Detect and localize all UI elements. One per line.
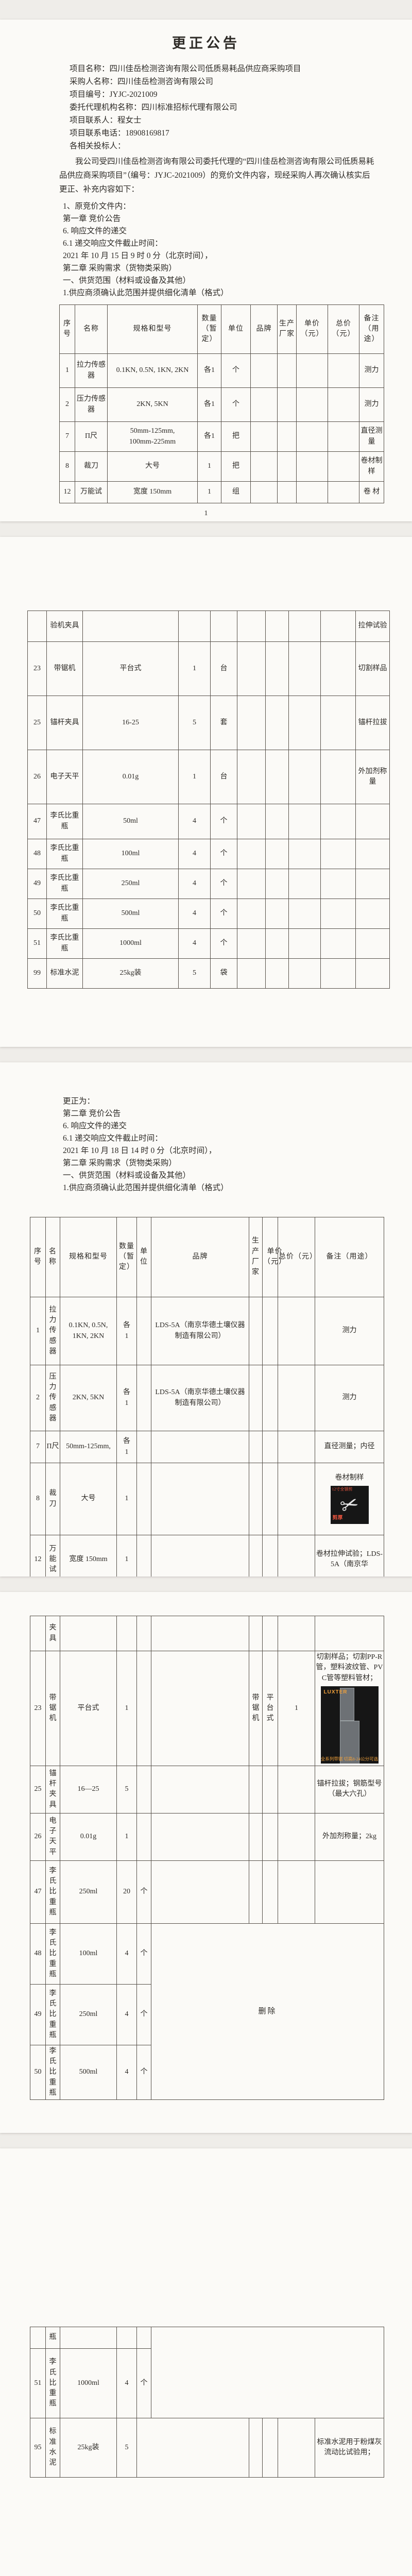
table-cell: 个: [137, 1860, 151, 1923]
table-cell: [321, 804, 356, 839]
table-cell: 12: [30, 1535, 46, 1577]
original-supply-table: 序号名称规格和型号数量（暂定）单位品牌生产厂家单价（元）总价（元）备注（用途）1…: [59, 304, 412, 503]
table-cell: 裁刀: [75, 452, 108, 482]
table-cell: 51: [28, 929, 47, 959]
table-cell: [328, 388, 359, 422]
table-cell: [151, 1535, 249, 1577]
table-cell: 电子天平: [46, 1813, 60, 1860]
table-cell: [278, 354, 297, 388]
table-cell: [137, 1616, 151, 1651]
table-cell: [289, 929, 321, 959]
table-cell: [289, 804, 321, 839]
table-cell: 锚杆夹具: [46, 1766, 60, 1813]
table-cell: Π尺: [75, 422, 108, 452]
table-cell: 4: [179, 869, 211, 899]
table-cell: 4: [179, 804, 211, 839]
table-cell: [321, 959, 356, 989]
table-cell: 台: [211, 642, 237, 696]
project-info-block: 项目名称：四川佳岳检测咨询有限公司低质易耗品供应商采购项目采购人名称：四川佳岳检…: [0, 52, 412, 152]
table-cell: [266, 929, 289, 959]
header-cell: 序号: [30, 1217, 46, 1297]
table-row: 51李氏比重瓶1000ml4个: [28, 929, 390, 959]
table-cell: [251, 422, 278, 452]
table-cell: 49: [28, 869, 47, 899]
table-cell: [321, 696, 356, 750]
table-cell: [237, 804, 266, 839]
table-cell: 直径测量: [359, 422, 384, 452]
table-cell: [278, 1463, 315, 1535]
table-cell: 0.01g: [83, 750, 179, 804]
table-cell: 测力: [359, 354, 384, 388]
table-cell: [278, 482, 297, 503]
table-cell: [289, 696, 321, 750]
header-cell: 名称: [46, 1217, 60, 1297]
table-cell: [278, 1431, 315, 1463]
table-cell: 100ml: [60, 1923, 117, 1984]
table-cell: 个: [137, 1923, 151, 1984]
table-cell: 20: [117, 1860, 137, 1923]
table-cell: 个: [137, 2349, 151, 2418]
text-line: 更正为：: [63, 1095, 383, 1108]
table-cell: 各 1: [117, 1365, 137, 1431]
table-cell: 李氏比重瓶: [46, 1860, 60, 1923]
table-cell: [263, 1431, 278, 1463]
table-cell: 51: [30, 2349, 46, 2418]
table-cell: 李氏比重瓶: [47, 869, 83, 899]
table-cell: 外加剂称量；2kg: [315, 1813, 384, 1860]
table-cell: [328, 482, 359, 503]
table-cell: 4: [117, 2349, 137, 2418]
table-cell: 99: [28, 959, 47, 989]
table-cell: 李氏比重瓶: [46, 1984, 60, 2045]
table-cell: 50: [30, 2045, 46, 2099]
header-cell: 规格和型号: [60, 1217, 117, 1297]
page-2: 验机夹具拉伸试验23带锯机平台式1台切割样品25锚杆夹具16-255套锚杆拉拔2…: [0, 537, 412, 1047]
table-cell: 大号: [108, 452, 198, 482]
table-cell: [278, 1860, 315, 1923]
table-cell: [263, 1616, 278, 1651]
table-cell: 拉伸试验: [356, 611, 390, 642]
table-cell: [249, 1766, 263, 1813]
table-cell: 49: [30, 1984, 46, 2045]
corrected-supply-table: 序号名称规格和型号数量（暂定）单位品牌生产厂家单价（元）总价（元）备注（用途）1…: [30, 1217, 412, 1577]
table-cell: 4: [117, 1984, 137, 2045]
table-cell: 个: [221, 354, 251, 388]
header-cell: 序号: [60, 305, 75, 354]
text-line: 项目联系电话：18908169817: [70, 127, 376, 140]
table-cell: 2: [30, 1365, 46, 1431]
table-cell: 测力: [315, 1297, 384, 1365]
table-cell: 4: [179, 929, 211, 959]
table-cell: 大号: [60, 1463, 117, 1535]
table-cell: [117, 1616, 137, 1651]
table-cell: [60, 2327, 117, 2349]
table-cell: 个: [211, 899, 237, 929]
table-cell: 验机夹具: [47, 611, 83, 642]
table-cell: 个: [211, 839, 237, 869]
table-cell: [263, 1365, 278, 1431]
table-cell: 5: [179, 959, 211, 989]
table-cell: [60, 1616, 117, 1651]
table-cell: 47: [30, 1860, 46, 1923]
table-cell: [266, 869, 289, 899]
header-cell: 总价（元）: [278, 1217, 315, 1297]
table-cell: 万能试: [46, 1535, 60, 1577]
table-cell: [151, 1431, 249, 1463]
table-cell: 4: [117, 2045, 137, 2099]
table-cell: 25: [28, 696, 47, 750]
table-cell: 5: [117, 2418, 137, 2478]
table-cell: 1: [30, 1297, 46, 1365]
text-line: 2021 年 10 月 15 日 9 时 0 分（北京时间），: [63, 250, 383, 262]
table-cell: 1: [179, 750, 211, 804]
table-cell: 7: [30, 1431, 46, 1463]
document-table: 夹具23带锯机平台式1带锯机平台式1切割样品；切割PP-R管，塑料波纹管、PVC…: [30, 1616, 384, 2100]
table-cell: 100ml: [83, 839, 179, 869]
table-cell: 切割样品；切割PP-R管，塑料波纹管、PVC管等塑料管材；LUXTER全系列带锯…: [315, 1651, 384, 1766]
table-cell: [137, 1651, 151, 1766]
correction-announcement-document: 更正公告 项目名称：四川佳岳检测咨询有限公司低质易耗品供应商采购项目采购人名称：…: [0, 0, 412, 2576]
intro-paragraph: 我公司受四川佳岳检测咨询有限公司委托代理的“四川佳岳检测咨询有限公司低质易耗品供…: [0, 152, 412, 196]
table-row: 48李氏比重瓶100ml4个删除: [30, 1923, 384, 1984]
table-cell: 23: [30, 1651, 46, 1766]
text-line: 项目名称：四川佳岳检测咨询有限公司低质易耗品供应商采购项目: [70, 62, 376, 75]
table-cell: 50mm-125mm, 100mm-225mm: [108, 422, 198, 452]
table-cell: [289, 959, 321, 989]
table-cell: 锚杆拉拔；钢筋型号（最大六孔）: [315, 1766, 384, 1813]
table-cell: [289, 869, 321, 899]
table-row: 7Π尺50mm-125mm, 100mm-225mm各1把直径测量: [60, 422, 384, 452]
text-line: 一、供货范围（材料或设备及其他）: [63, 275, 383, 287]
table-cell: [151, 1813, 249, 1860]
table-cell: [328, 452, 359, 482]
table-cell: 标准水泥用于粉煤灰流动比试验用；: [315, 2418, 384, 2478]
text-line: 6.1 递交响应文件截止时间：: [63, 238, 383, 250]
table-cell: 李氏比重瓶: [47, 929, 83, 959]
table-cell: 个: [221, 388, 251, 422]
table-cell: [237, 611, 266, 642]
table-cell: 1: [198, 482, 221, 503]
table-cell: [321, 642, 356, 696]
table-cell: 拉力传感器: [75, 354, 108, 388]
table-cell: 0.01g: [60, 1813, 117, 1860]
table-cell: 26: [30, 1813, 46, 1860]
table-cell: 50: [28, 899, 47, 929]
table-row: 47李氏比重瓶250ml20个: [30, 1860, 384, 1923]
table-cell: 50mm-125mm,: [60, 1431, 117, 1463]
table-cell: 50ml: [83, 804, 179, 839]
document-table: 序号名称规格和型号数量（暂定）单位品牌生产厂家单价（元）总价（元）备注（用途）1…: [30, 1217, 384, 1577]
header-cell: 数量（暂定）: [198, 305, 221, 354]
text-line: 项目编号：JYJC-2021009: [70, 88, 376, 101]
table-cell: 500ml: [83, 899, 179, 929]
table-cell: 切割样品: [356, 642, 390, 696]
table-cell: [278, 1365, 315, 1431]
table-header-row: 序号名称规格和型号数量（暂定）单位品牌生产厂家单价（元）总价（元）备注（用途）: [60, 305, 384, 354]
table-cell: [266, 611, 289, 642]
table-cell: 个: [211, 804, 237, 839]
table-cell: [237, 696, 266, 750]
table-cell: [289, 899, 321, 929]
table-cell: 卷材制样12寸全钢剪✂剪厚: [315, 1463, 384, 1535]
table-cell: 台: [211, 750, 237, 804]
page-5: 瓶51李氏比重瓶1000ml4个95标准水泥25kg装5标准水泥用于粉煤灰流动比…: [0, 2148, 412, 2576]
document-table: 瓶51李氏比重瓶1000ml4个95标准水泥25kg装5标准水泥用于粉煤灰流动比…: [30, 2327, 384, 2478]
table-cell: LDS-5A（南京华德土壤仪器制造有限公司）: [151, 1365, 249, 1431]
table-cell: [249, 1535, 263, 1577]
page-1: 更正公告 项目名称：四川佳岳检测咨询有限公司低质易耗品供应商采购项目采购人名称：…: [0, 20, 412, 521]
table-row: 99标准水泥25kg装5袋: [28, 959, 390, 989]
table-cell: [297, 354, 328, 388]
table-cell: 2KN, 5KN: [60, 1365, 117, 1431]
table-cell: [251, 452, 278, 482]
table-cell: 套: [211, 696, 237, 750]
text-line: 第一章 竞价公告: [63, 213, 383, 225]
table-cell: [137, 1463, 151, 1535]
table-cell: [179, 611, 211, 642]
table-cell: 1: [117, 1463, 137, 1535]
table-cell: 23: [28, 642, 47, 696]
table-cell: 卷材拉伸试验；LDS-5A（南京华: [315, 1535, 384, 1577]
table-row: 瓶: [30, 2327, 384, 2349]
table-cell: 500ml: [60, 2045, 117, 2099]
table-row: 7Π尺50mm-125mm,各 1直径测量；内径: [30, 1431, 384, 1463]
table-cell: [263, 1860, 278, 1923]
table-cell: [251, 482, 278, 503]
table-cell: 李氏比重瓶: [46, 2045, 60, 2099]
table-cell: 压力传感器: [75, 388, 108, 422]
table-row: 95标准水泥25kg装5标准水泥用于粉煤灰流动比试验用；: [30, 2418, 384, 2478]
table-cell: 个: [137, 2045, 151, 2099]
table-cell: [278, 1616, 315, 1651]
table-cell: [137, 1766, 151, 1813]
table-cell: [30, 1616, 46, 1651]
header-cell: 单位: [137, 1217, 151, 1297]
table-cell: 压力传感器: [46, 1365, 60, 1431]
header-cell: 备注（用途）: [315, 1217, 384, 1297]
table-cell: [249, 1463, 263, 1535]
document-table: 序号名称规格和型号数量（暂定）单位品牌生产厂家单价（元）总价（元）备注（用途）1…: [59, 304, 384, 503]
bandsaw-product-photo: LUXTER全系列带锯 切高8-24公分可选: [321, 1686, 379, 1764]
table-cell: [328, 422, 359, 452]
table-row: 25锚杆夹具16—255锚杆拉拔；钢筋型号（最大六孔）: [30, 1766, 384, 1813]
table-row: 23带锯机平台式1台切割样品: [28, 642, 390, 696]
table-row: 47李氏比重瓶50ml4个: [28, 804, 390, 839]
table-cell: 李氏比重瓶: [46, 2349, 60, 2418]
text-line: 2021 年 10 月 18 日 14 时 0 分（北京时间），: [63, 1145, 383, 1157]
table-cell: 拉力传感器: [46, 1297, 60, 1365]
table-cell: 47: [28, 804, 47, 839]
table-cell: 1000ml: [60, 2349, 117, 2418]
table-cell: 外加剂称量: [356, 750, 390, 804]
table-row: 8裁刀大号1把卷材制样: [60, 452, 384, 482]
table-cell: 带锯机: [46, 1651, 60, 1766]
table-cell: 夹具: [46, 1616, 60, 1651]
table-cell: [151, 1766, 249, 1813]
table-cell: [321, 750, 356, 804]
table-cell: 1000ml: [83, 929, 179, 959]
table-cell: 1: [117, 1535, 137, 1577]
table-cell: 1: [60, 354, 75, 388]
table-cell: [249, 1365, 263, 1431]
table-cell: LDS-5A（南京华德土壤仪器制造有限公司）: [151, 1297, 249, 1365]
table-cell: [151, 1860, 249, 1923]
table-cell: 平台式: [263, 1651, 278, 1766]
table-cell: [278, 452, 297, 482]
table-cell: [321, 611, 356, 642]
table-cell: 2: [60, 388, 75, 422]
table-cell: 1: [117, 1813, 137, 1860]
table-cell: 直径测量；内径: [315, 1431, 384, 1463]
table-row: 8裁刀大号1卷材制样12寸全钢剪✂剪厚: [30, 1463, 384, 1535]
table-cell: [321, 869, 356, 899]
table-row: 1拉力传感器0.1KN, 0.5N, 1KN, 2KN各 1LDS-5A（南京华…: [30, 1297, 384, 1365]
table-cell: [356, 929, 390, 959]
table-cell: [249, 1616, 263, 1651]
table-cell: [263, 1535, 278, 1577]
header-cell: 总价（元）: [328, 305, 359, 354]
table-cell: [289, 839, 321, 869]
text-line: 1.供应商须确认此范围并提供细化清单（格式）: [63, 1182, 383, 1194]
table-cell: 把: [221, 422, 251, 452]
table-cell: [249, 1860, 263, 1923]
table-row: 26电子天平0.01g1外加剂称量；2kg: [30, 1813, 384, 1860]
table-cell: 带锯机: [47, 642, 83, 696]
corrected-supply-table-continued: 夹具23带锯机平台式1带锯机平台式1切割样品；切割PP-R管，塑料波纹管、PVC…: [30, 1616, 412, 2100]
table-cell: 测力: [359, 388, 384, 422]
table-cell: 删除: [151, 1923, 384, 2099]
table-cell: [237, 959, 266, 989]
table-cell: 锚杆拉拔: [356, 696, 390, 750]
table-cell: [278, 1813, 315, 1860]
table-cell: [266, 696, 289, 750]
table-cell: 250ml: [83, 869, 179, 899]
table-cell: 各1: [198, 422, 221, 452]
text-line: 一、供货范围（材料或设备及其他）: [63, 1170, 383, 1182]
text-line: 6.1 递交响应文件截止时间：: [63, 1132, 383, 1145]
header-cell: 生产厂家: [249, 1217, 263, 1297]
corrected-section-lines: 更正为：第二章 竞价公告6. 响应文件的递交6.1 递交响应文件截止时间：202…: [0, 1062, 412, 1194]
table-cell: [297, 452, 328, 482]
table-row: 夹具: [30, 1616, 384, 1651]
header-cell: 名称: [75, 305, 108, 354]
table-cell: [249, 1431, 263, 1463]
table-cell: 李氏比重瓶: [46, 1923, 60, 1984]
table-cell: 26: [28, 750, 47, 804]
table-cell: [263, 1297, 278, 1365]
table-cell: 卷 材: [359, 482, 384, 503]
table-cell: [315, 1860, 384, 1923]
table-cell: [151, 1651, 249, 1766]
table-cell: 标准水泥: [46, 2418, 60, 2478]
table-cell: 0.1KN, 0.5N, 1KN, 2KN: [108, 354, 198, 388]
table-cell: 组: [221, 482, 251, 503]
text-line: 委托代理机构名称：四川标准招标代理有限公司: [70, 101, 376, 114]
table-cell: [278, 422, 297, 452]
table-row: 50李氏比重瓶500ml4个: [28, 899, 390, 929]
text-line: 项目联系人：程女士: [70, 114, 376, 127]
table-cell: 李氏比重瓶: [47, 899, 83, 929]
table-cell: [137, 2327, 151, 2349]
table-cell: 4: [179, 839, 211, 869]
table-cell: 个: [211, 869, 237, 899]
table-cell: 个: [211, 929, 237, 959]
header-cell: 单价（元）: [263, 1217, 278, 1297]
text-line: 第二章 采购需求（货物类采购）: [63, 262, 383, 275]
document-table: 验机夹具拉伸试验23带锯机平台式1台切割样品25锚杆夹具16-255套锚杆拉拔2…: [27, 611, 390, 989]
table-cell: 25kg装: [83, 959, 179, 989]
table-cell: 250ml: [60, 1860, 117, 1923]
corrected-supply-table-end: 瓶51李氏比重瓶1000ml4个95标准水泥25kg装5标准水泥用于粉煤灰流动比…: [30, 2327, 412, 2478]
table-cell: [356, 804, 390, 839]
table-cell: [137, 1297, 151, 1365]
text-line: 6. 响应文件的递交: [63, 225, 383, 238]
table-cell: [249, 1813, 263, 1860]
table-cell: [297, 388, 328, 422]
page-3: 更正为：第二章 竞价公告6. 响应文件的递交6.1 递交响应文件截止时间：202…: [0, 1062, 412, 1577]
table-cell: 卷材制样: [359, 452, 384, 482]
table-cell: [237, 929, 266, 959]
table-cell: 平台式: [60, 1651, 117, 1766]
table-cell: [237, 899, 266, 929]
header-cell: 数量（暂定）: [117, 1217, 137, 1297]
table-cell: [278, 1766, 315, 1813]
table-cell: [263, 1463, 278, 1535]
table-cell: 李氏比重瓶: [47, 839, 83, 869]
table-cell: 宽度 150mm: [60, 1535, 117, 1577]
table-cell: [266, 804, 289, 839]
text-line: 第二章 采购需求（货物类采购）: [63, 1157, 383, 1170]
text-line: 采购人名称：四川佳岳检测咨询有限公司: [70, 75, 376, 88]
table-cell: Π尺: [46, 1431, 60, 1463]
table-cell: 各1: [198, 388, 221, 422]
table-cell: 250ml: [60, 1984, 117, 2045]
table-cell: [266, 959, 289, 989]
table-cell: [321, 929, 356, 959]
header-cell: 单价（元）: [297, 305, 328, 354]
table-row: 49李氏比重瓶250ml4个: [28, 869, 390, 899]
table-cell: 8: [60, 452, 75, 482]
text-line: 6. 响应文件的递交: [63, 1120, 383, 1132]
table-cell: [237, 750, 266, 804]
table-cell: [266, 750, 289, 804]
text-line: 1、原竞价文件内：: [63, 200, 383, 213]
table-cell: [289, 611, 321, 642]
table-cell: 万能试: [75, 482, 108, 503]
table-cell: 各1: [198, 354, 221, 388]
page-number: 1: [0, 510, 412, 518]
table-cell: [249, 1297, 263, 1365]
table-cell: 李氏比重瓶: [47, 804, 83, 839]
table-cell: 锚杆夹具: [47, 696, 83, 750]
header-cell: 生产厂家: [278, 305, 297, 354]
table-cell: 个: [137, 1984, 151, 2045]
table-cell: [151, 1616, 249, 1651]
table-cell: [356, 959, 390, 989]
table-cell: [266, 839, 289, 869]
table-cell: 25kg装: [60, 2418, 117, 2478]
table-cell: [137, 1365, 151, 1431]
table-cell: 1: [278, 1651, 315, 1766]
table-cell: [251, 354, 278, 388]
table-row: 48李氏比重瓶100ml4个: [28, 839, 390, 869]
table-cell: [328, 354, 359, 388]
table-cell: 瓶: [46, 2327, 60, 2349]
table-row: 1拉力传感器0.1KN, 0.5N, 1KN, 2KN各1个测力: [60, 354, 384, 388]
table-cell: 带锯机: [249, 1651, 263, 1766]
original-supply-table-continued: 验机夹具拉伸试验23带锯机平台式1台切割样品25锚杆夹具16-255套锚杆拉拔2…: [27, 611, 412, 989]
table-cell: 裁刀: [46, 1463, 60, 1535]
